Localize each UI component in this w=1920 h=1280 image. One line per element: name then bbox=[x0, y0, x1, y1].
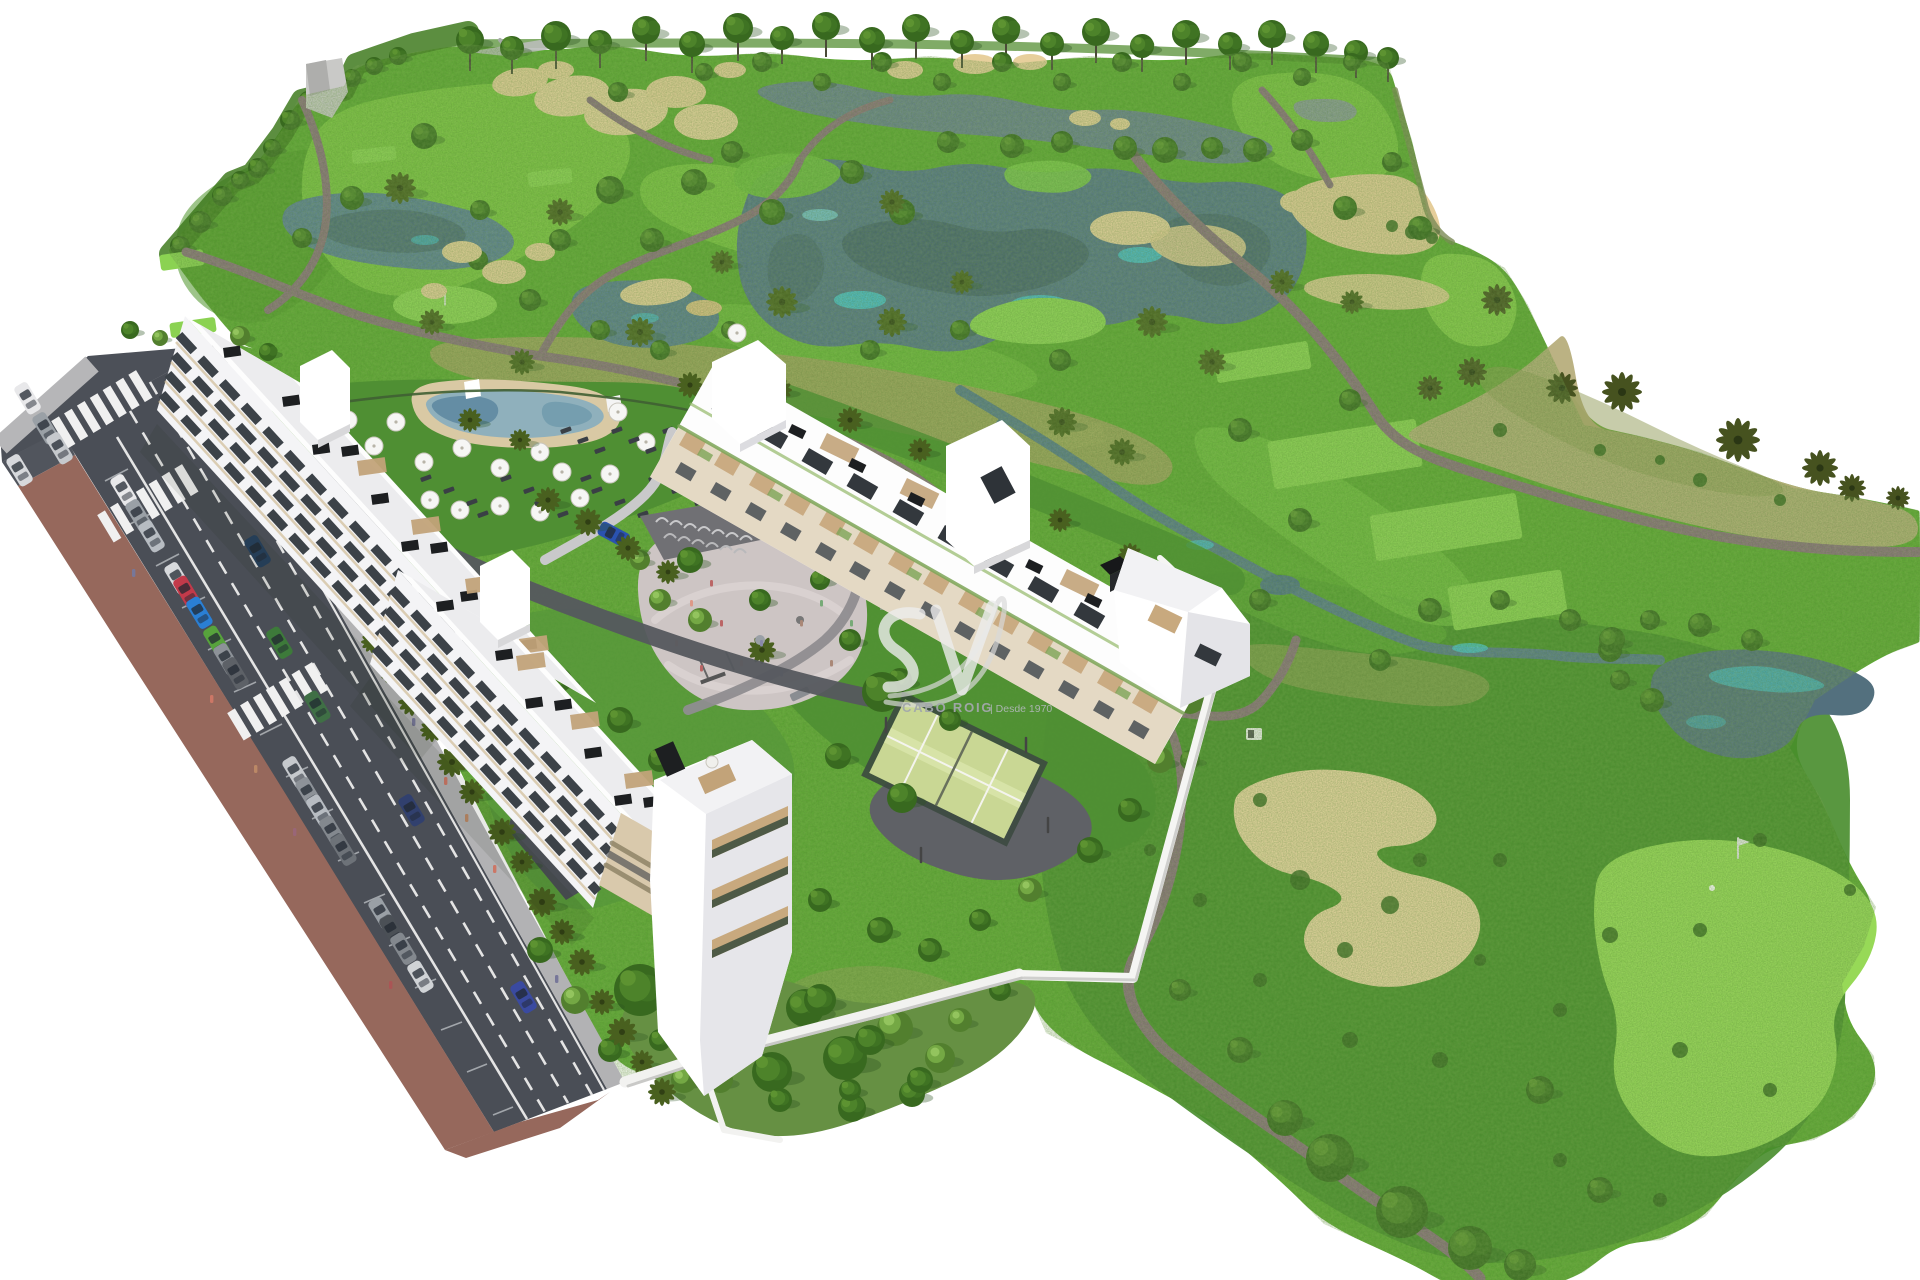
svg-text:CABO ROIG: CABO ROIG bbox=[902, 700, 993, 715]
svg-text:| Desde 1970: | Desde 1970 bbox=[990, 703, 1052, 715]
